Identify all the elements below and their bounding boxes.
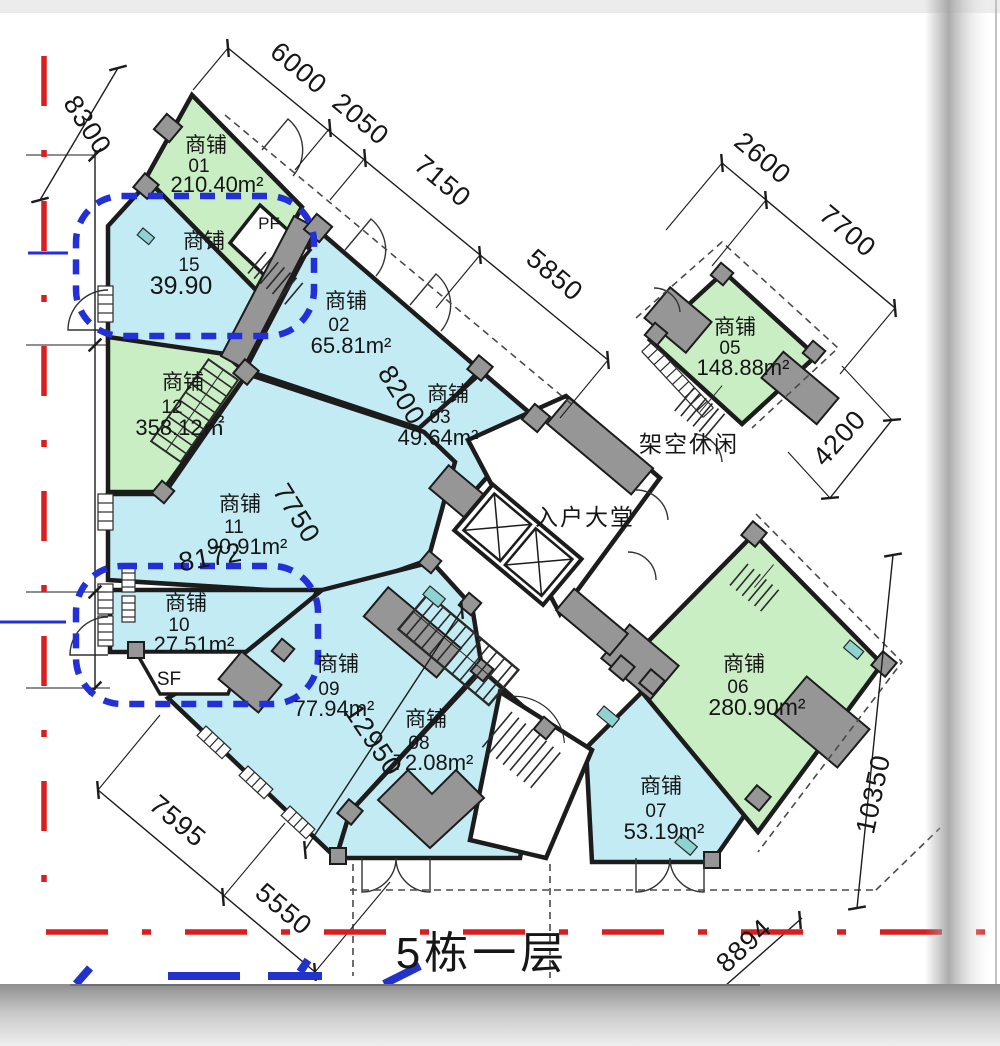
label-leisure: 架空休闲 <box>639 431 739 457</box>
dim-7150: 7150 <box>409 149 477 213</box>
plan-title: 5栋一层 <box>396 929 568 978</box>
label-sf: SF <box>157 669 181 690</box>
svg-text:27.51m²: 27.51m² <box>154 632 235 657</box>
svg-text:77.94m²: 77.94m² <box>294 696 375 721</box>
label-pf: PF <box>258 214 280 233</box>
svg-text:商铺: 商铺 <box>427 383 469 406</box>
cropped-blue-annotation <box>76 960 420 984</box>
svg-text:商铺: 商铺 <box>723 653 765 676</box>
wall-block <box>556 589 628 655</box>
dim-2600: 2600 <box>729 126 797 190</box>
svg-text:65.81m²: 65.81m² <box>311 333 392 358</box>
dim-10350: 10350 <box>850 752 896 837</box>
svg-text:商铺: 商铺 <box>325 290 367 313</box>
dim-2050: 2050 <box>327 87 395 151</box>
svg-text:商铺: 商铺 <box>165 592 207 615</box>
svg-text:商铺: 商铺 <box>640 775 682 798</box>
svg-text:商铺: 商铺 <box>183 230 225 253</box>
svg-text:商铺: 商铺 <box>185 134 227 157</box>
svg-text:商铺: 商铺 <box>219 493 261 516</box>
svg-text:358.12㎡: 358.12㎡ <box>135 415 224 440</box>
svg-text:72.08m²: 72.08m² <box>393 750 474 775</box>
svg-text:148.88m²: 148.88m² <box>697 355 790 380</box>
label-lobby: 入户大堂 <box>535 504 635 530</box>
svg-text:商铺: 商铺 <box>405 708 447 731</box>
svg-text:90.91m²: 90.91m² <box>207 534 288 559</box>
floorplan-page: 8300 6000 2050 7150 5850 2600 7700 8200 … <box>0 0 1000 1046</box>
svg-text:39.90: 39.90 <box>150 272 213 300</box>
dim-6000: 6000 <box>265 36 333 100</box>
svg-text:商铺: 商铺 <box>317 653 359 676</box>
svg-text:210.40m²: 210.40m² <box>171 172 264 197</box>
dim-7700: 7700 <box>814 199 882 263</box>
svg-text:49.64m²: 49.64m² <box>398 425 479 450</box>
svg-text:商铺: 商铺 <box>714 316 756 339</box>
svg-text:商铺: 商铺 <box>162 371 204 394</box>
svg-text:280.90m²: 280.90m² <box>708 694 806 720</box>
svg-text:53.19m²: 53.19m² <box>624 819 705 844</box>
dim-7595: 7595 <box>144 789 212 853</box>
floorplan-drawing: 8300 6000 2050 7150 5850 2600 7700 8200 … <box>0 0 1000 1046</box>
dim-8300: 8300 <box>58 90 118 160</box>
